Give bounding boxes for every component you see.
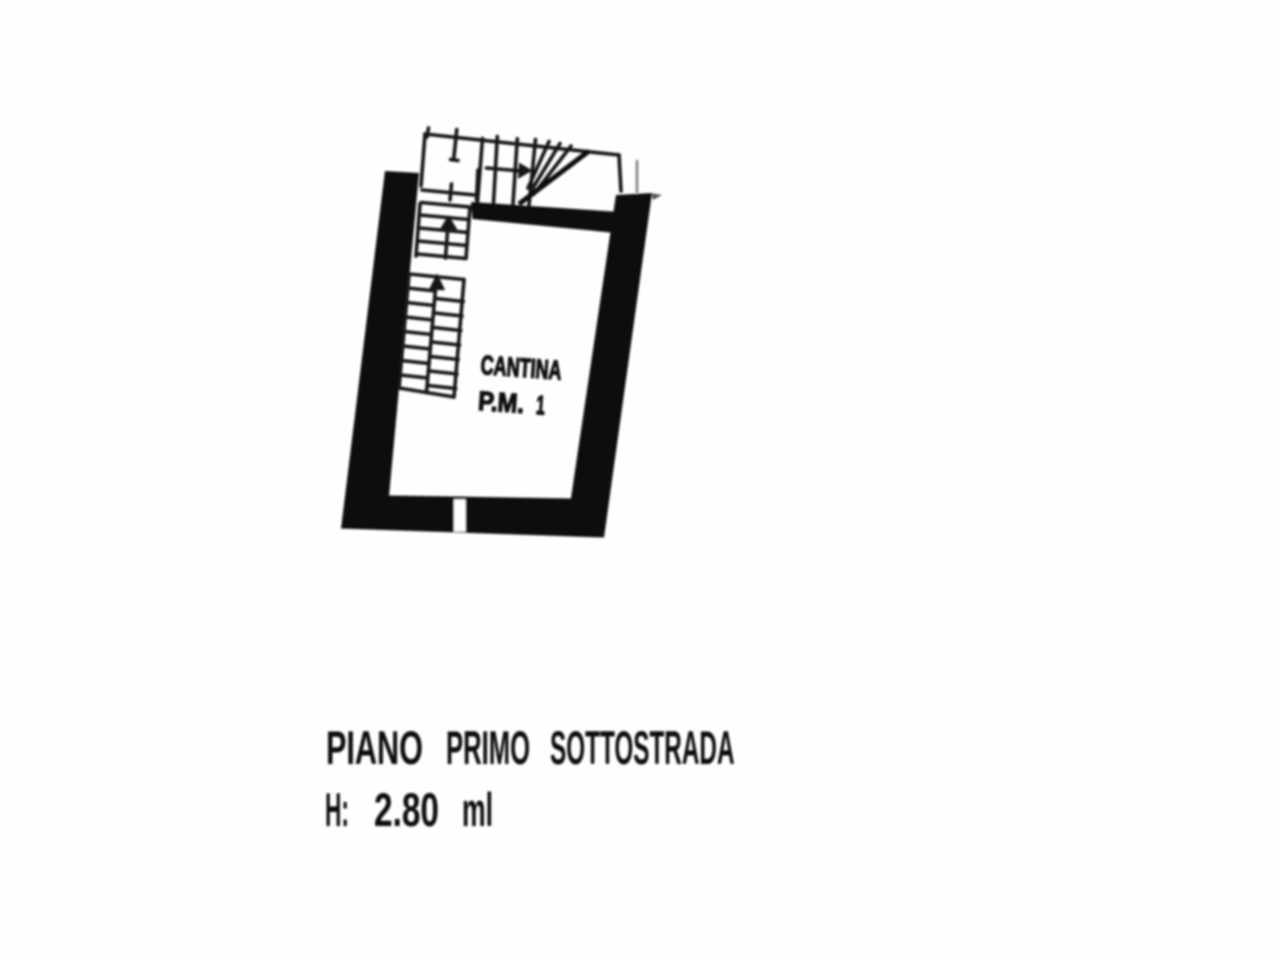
svg-text:CANTINA: CANTINA — [480, 350, 563, 386]
svg-text:PIANO: PIANO — [326, 721, 423, 774]
svg-text:2.80: 2.80 — [374, 783, 439, 836]
svg-text:H:: H: — [325, 783, 349, 836]
svg-text:ml: ml — [462, 783, 493, 836]
svg-text:P.M.: P.M. — [477, 386, 525, 419]
svg-text:SOTTOSTRADA: SOTTOSTRADA — [550, 721, 735, 774]
svg-text:PRIMO: PRIMO — [446, 721, 530, 774]
